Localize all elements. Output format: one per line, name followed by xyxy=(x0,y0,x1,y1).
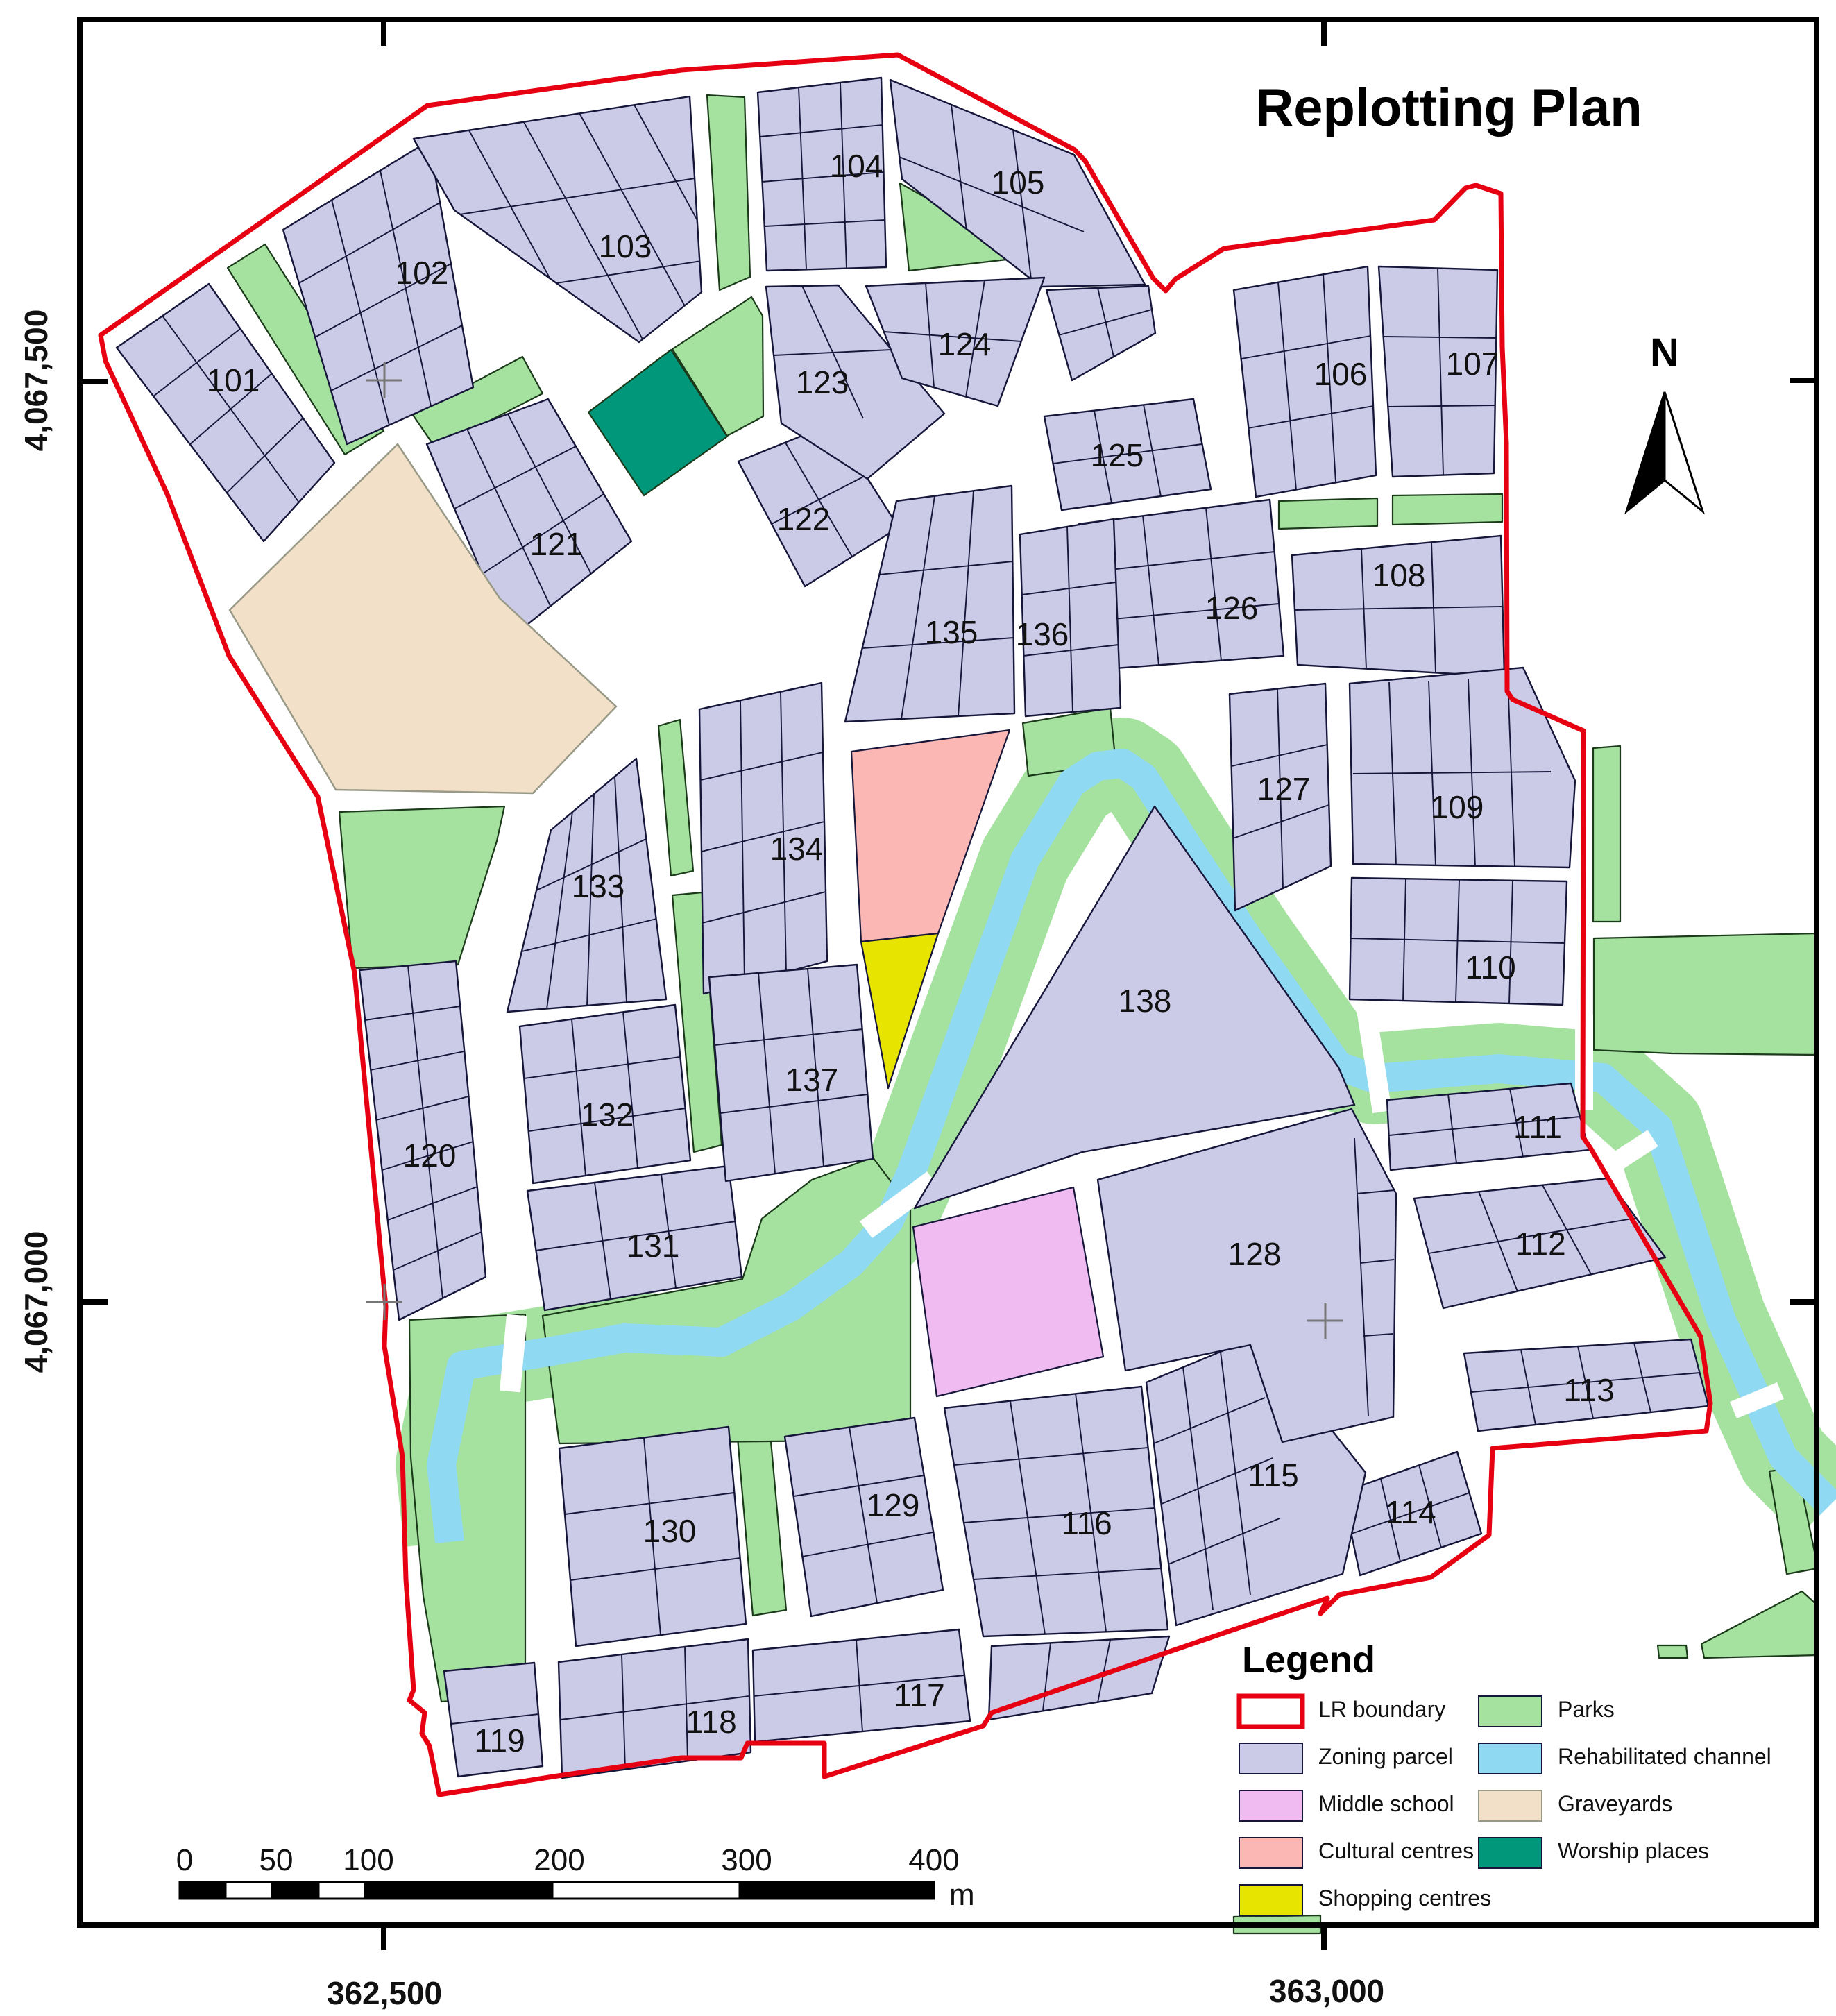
svg-text:131: 131 xyxy=(627,1228,680,1264)
svg-text:115: 115 xyxy=(1248,1457,1298,1493)
svg-text:Shopping centres: Shopping centres xyxy=(1318,1886,1491,1911)
svg-text:104: 104 xyxy=(830,148,883,184)
svg-text:LR boundary: LR boundary xyxy=(1318,1697,1445,1722)
svg-text:134: 134 xyxy=(770,831,824,867)
svg-text:128: 128 xyxy=(1228,1236,1282,1272)
svg-text:130: 130 xyxy=(643,1513,697,1549)
svg-text:300: 300 xyxy=(721,1843,772,1877)
svg-text:127: 127 xyxy=(1257,771,1311,807)
svg-text:137: 137 xyxy=(785,1062,839,1098)
svg-text:111: 111 xyxy=(1513,1109,1562,1145)
svg-text:105: 105 xyxy=(992,164,1045,201)
svg-text:50: 50 xyxy=(260,1843,294,1877)
svg-text:363,000: 363,000 xyxy=(1269,1973,1384,2009)
svg-text:117: 117 xyxy=(894,1677,944,1713)
svg-text:200: 200 xyxy=(534,1843,584,1877)
svg-text:135: 135 xyxy=(925,614,978,650)
svg-text:108: 108 xyxy=(1372,557,1426,593)
svg-text:133: 133 xyxy=(572,868,625,904)
svg-text:4,067,000: 4,067,000 xyxy=(18,1231,54,1373)
svg-text:362,500: 362,500 xyxy=(327,1975,442,2011)
svg-text:Worship places: Worship places xyxy=(1558,1838,1709,1863)
svg-text:Parks: Parks xyxy=(1558,1697,1615,1722)
svg-text:106: 106 xyxy=(1314,356,1368,392)
svg-text:119: 119 xyxy=(474,1722,525,1759)
svg-text:112: 112 xyxy=(1515,1226,1565,1262)
svg-text:113: 113 xyxy=(1563,1372,1614,1408)
svg-text:400: 400 xyxy=(908,1843,959,1877)
svg-text:107: 107 xyxy=(1446,346,1499,382)
svg-text:Cultural centres: Cultural centres xyxy=(1318,1838,1474,1863)
svg-text:118: 118 xyxy=(686,1704,736,1740)
svg-text:Legend: Legend xyxy=(1242,1639,1375,1681)
svg-text:121: 121 xyxy=(530,526,584,562)
svg-text:Replotting Plan: Replotting Plan xyxy=(1255,78,1642,137)
svg-text:Zoning parcel: Zoning parcel xyxy=(1318,1744,1453,1769)
svg-text:4,067,500: 4,067,500 xyxy=(18,310,54,452)
svg-text:116: 116 xyxy=(1061,1505,1112,1541)
svg-text:114: 114 xyxy=(1385,1494,1436,1530)
svg-text:100: 100 xyxy=(343,1843,393,1877)
svg-text:101: 101 xyxy=(207,362,260,398)
svg-text:N: N xyxy=(1650,330,1679,375)
svg-text:124: 124 xyxy=(938,326,992,362)
svg-text:125: 125 xyxy=(1091,437,1144,473)
svg-text:103: 103 xyxy=(599,228,652,264)
svg-text:138: 138 xyxy=(1119,983,1172,1019)
svg-text:123: 123 xyxy=(796,364,849,400)
svg-text:Graveyards: Graveyards xyxy=(1558,1791,1672,1816)
svg-text:136: 136 xyxy=(1016,616,1069,652)
svg-text:120: 120 xyxy=(403,1137,457,1174)
svg-text:110: 110 xyxy=(1465,949,1515,985)
svg-text:m: m xyxy=(949,1878,975,1912)
svg-text:109: 109 xyxy=(1431,789,1484,825)
svg-text:Rehabilitated channel: Rehabilitated channel xyxy=(1558,1744,1771,1769)
svg-text:132: 132 xyxy=(581,1096,634,1133)
svg-text:102: 102 xyxy=(396,255,449,291)
svg-text:126: 126 xyxy=(1205,590,1259,626)
svg-text:Middle school: Middle school xyxy=(1318,1791,1454,1816)
svg-text:129: 129 xyxy=(867,1487,920,1523)
svg-text:122: 122 xyxy=(777,501,831,537)
svg-text:0: 0 xyxy=(176,1843,193,1877)
